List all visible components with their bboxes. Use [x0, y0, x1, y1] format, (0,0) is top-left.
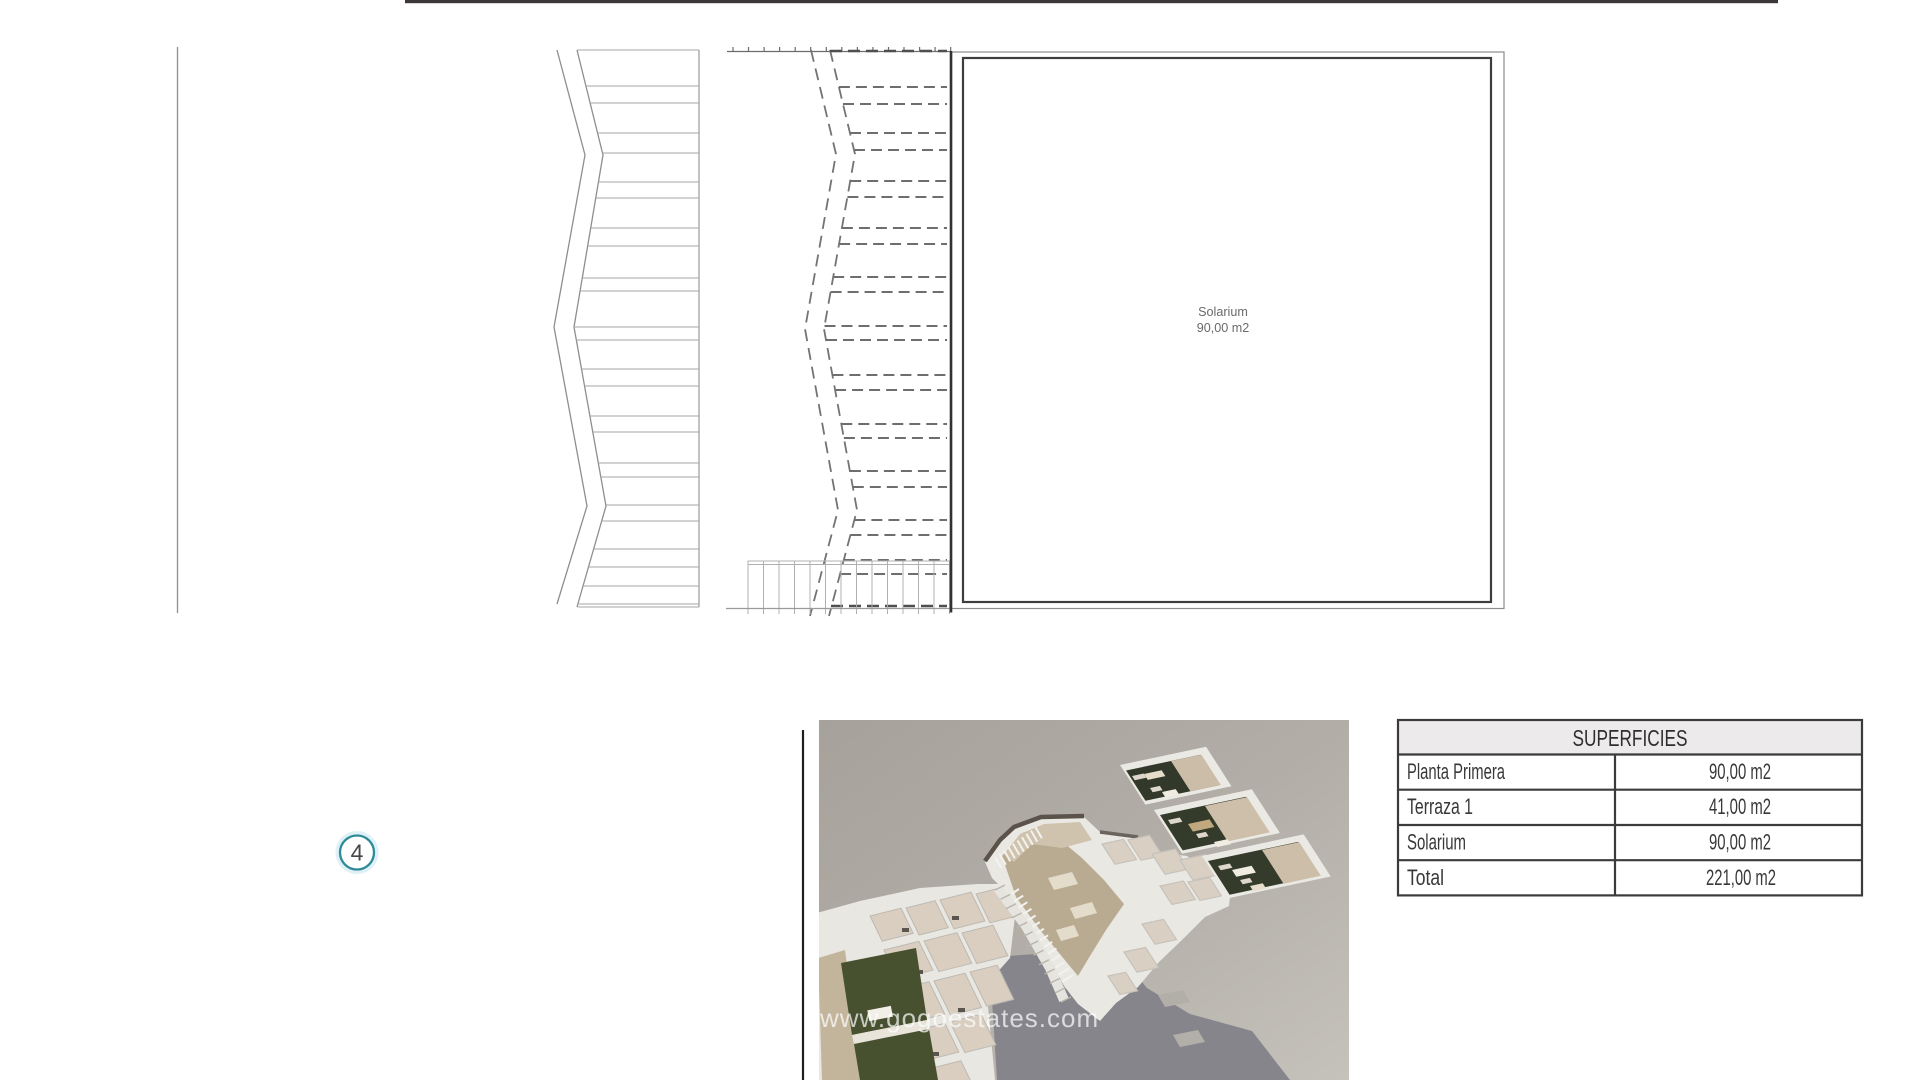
svg-text:Solarium: Solarium — [1198, 305, 1248, 319]
svg-text:90,00 m2: 90,00 m2 — [1709, 759, 1771, 784]
svg-text:4: 4 — [351, 840, 364, 866]
svg-text:www.gogoestates.com: www.gogoestates.com — [819, 1003, 1099, 1033]
svg-text:90,00 m2: 90,00 m2 — [1709, 830, 1771, 855]
svg-text:Solarium: Solarium — [1407, 830, 1466, 855]
svg-text:221,00 m2: 221,00 m2 — [1706, 865, 1776, 890]
svg-text:Terraza 1: Terraza 1 — [1407, 794, 1473, 819]
svg-text:SUPERFICIES: SUPERFICIES — [1573, 725, 1688, 751]
svg-text:41,00 m2: 41,00 m2 — [1709, 794, 1771, 819]
svg-text:90,00 m2: 90,00 m2 — [1197, 321, 1250, 335]
svg-text:Total: Total — [1407, 865, 1444, 890]
svg-text:Planta Primera: Planta Primera — [1407, 759, 1506, 784]
